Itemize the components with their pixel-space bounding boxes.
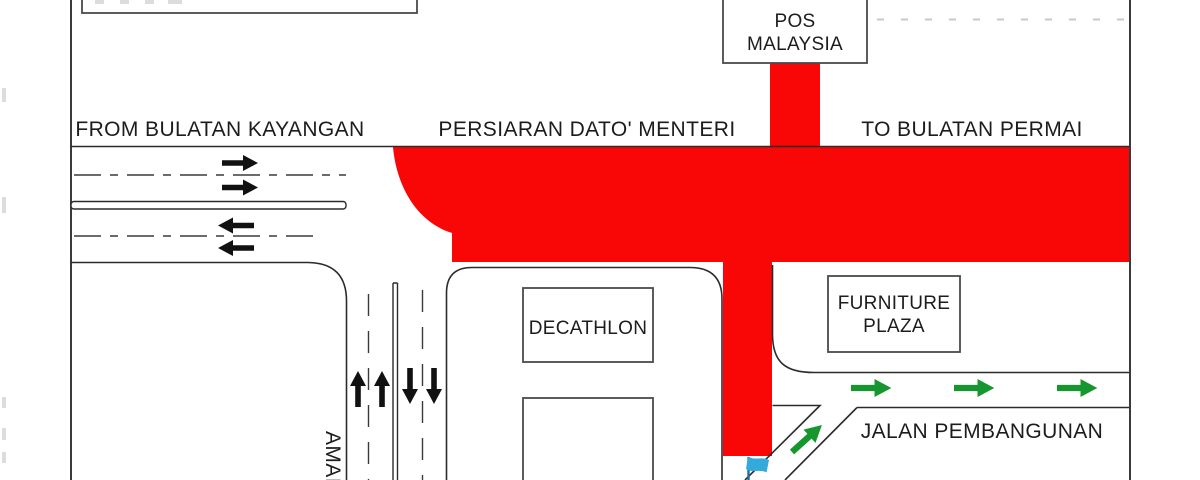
road-label-persiaran-dato-menteri: PERSIARAN DATO' MENTERI bbox=[438, 118, 735, 141]
furniture-plaza-box bbox=[828, 276, 960, 352]
west-road-median-island bbox=[71, 202, 346, 210]
closed-road-main bbox=[393, 147, 1129, 262]
furniture-plaza-label-line2: PLAZA bbox=[863, 316, 925, 337]
map-drawing: POS MALAYSIA DECATHLON FURNITURE PLAZA F… bbox=[0, 0, 1200, 480]
pos-malaysia-label-line2: MALAYSIA bbox=[747, 34, 843, 55]
unlabeled-building-box bbox=[523, 398, 653, 480]
closed-road-south-leg bbox=[723, 261, 772, 456]
closed-road-pos-malaysia-leg bbox=[770, 62, 820, 148]
pos-malaysia-label-line1: POS bbox=[774, 11, 815, 32]
furniture-plaza-label-line1: FURNITURE bbox=[838, 293, 950, 314]
building-outline-top-left bbox=[82, 0, 417, 13]
road-label-jalan-pembangunan: JALAN PEMBANGUNAN bbox=[861, 420, 1104, 443]
traffic-diversion-map: POS MALAYSIA DECATHLON FURNITURE PLAZA F… bbox=[0, 0, 1200, 480]
road-label-from-bulatan-kayangan: FROM BULATAN KAYANGAN bbox=[75, 118, 364, 141]
road-label-south-partial: AMAI bbox=[321, 431, 344, 480]
decathlon-label: DECATHLON bbox=[529, 318, 647, 339]
road-label-to-bulatan-permai: TO BULATAN PERMAI bbox=[861, 118, 1083, 141]
flag-banner bbox=[746, 457, 769, 473]
